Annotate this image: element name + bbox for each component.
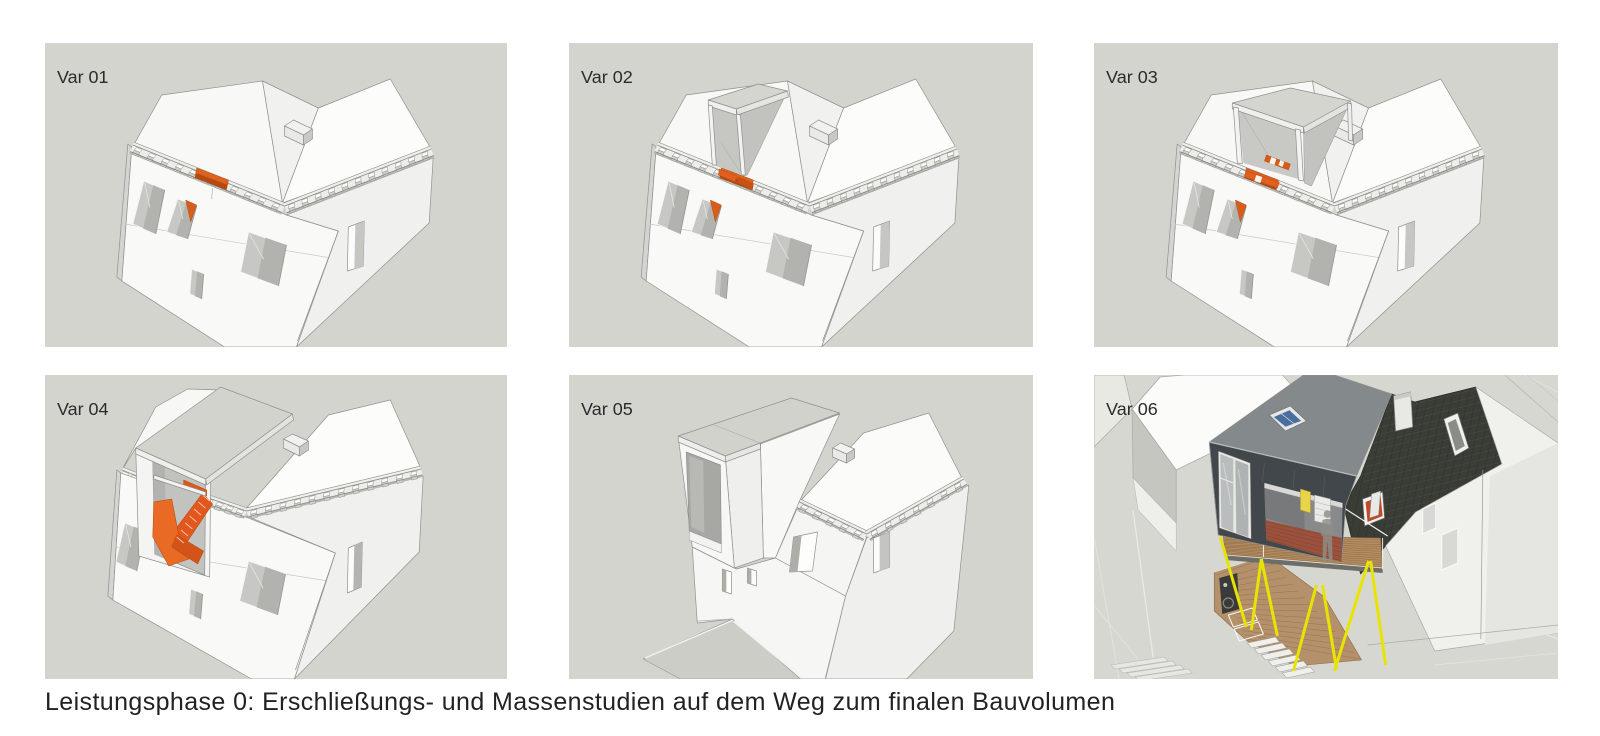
svg-text:Var 02: Var 02 bbox=[581, 67, 633, 87]
svg-text:Var 04: Var 04 bbox=[57, 399, 109, 419]
svg-text:Var 05: Var 05 bbox=[581, 399, 633, 419]
svg-text:Var 03: Var 03 bbox=[1106, 67, 1158, 87]
svg-text:Var 06: Var 06 bbox=[1106, 399, 1158, 419]
svg-text:Var 01: Var 01 bbox=[57, 67, 109, 87]
